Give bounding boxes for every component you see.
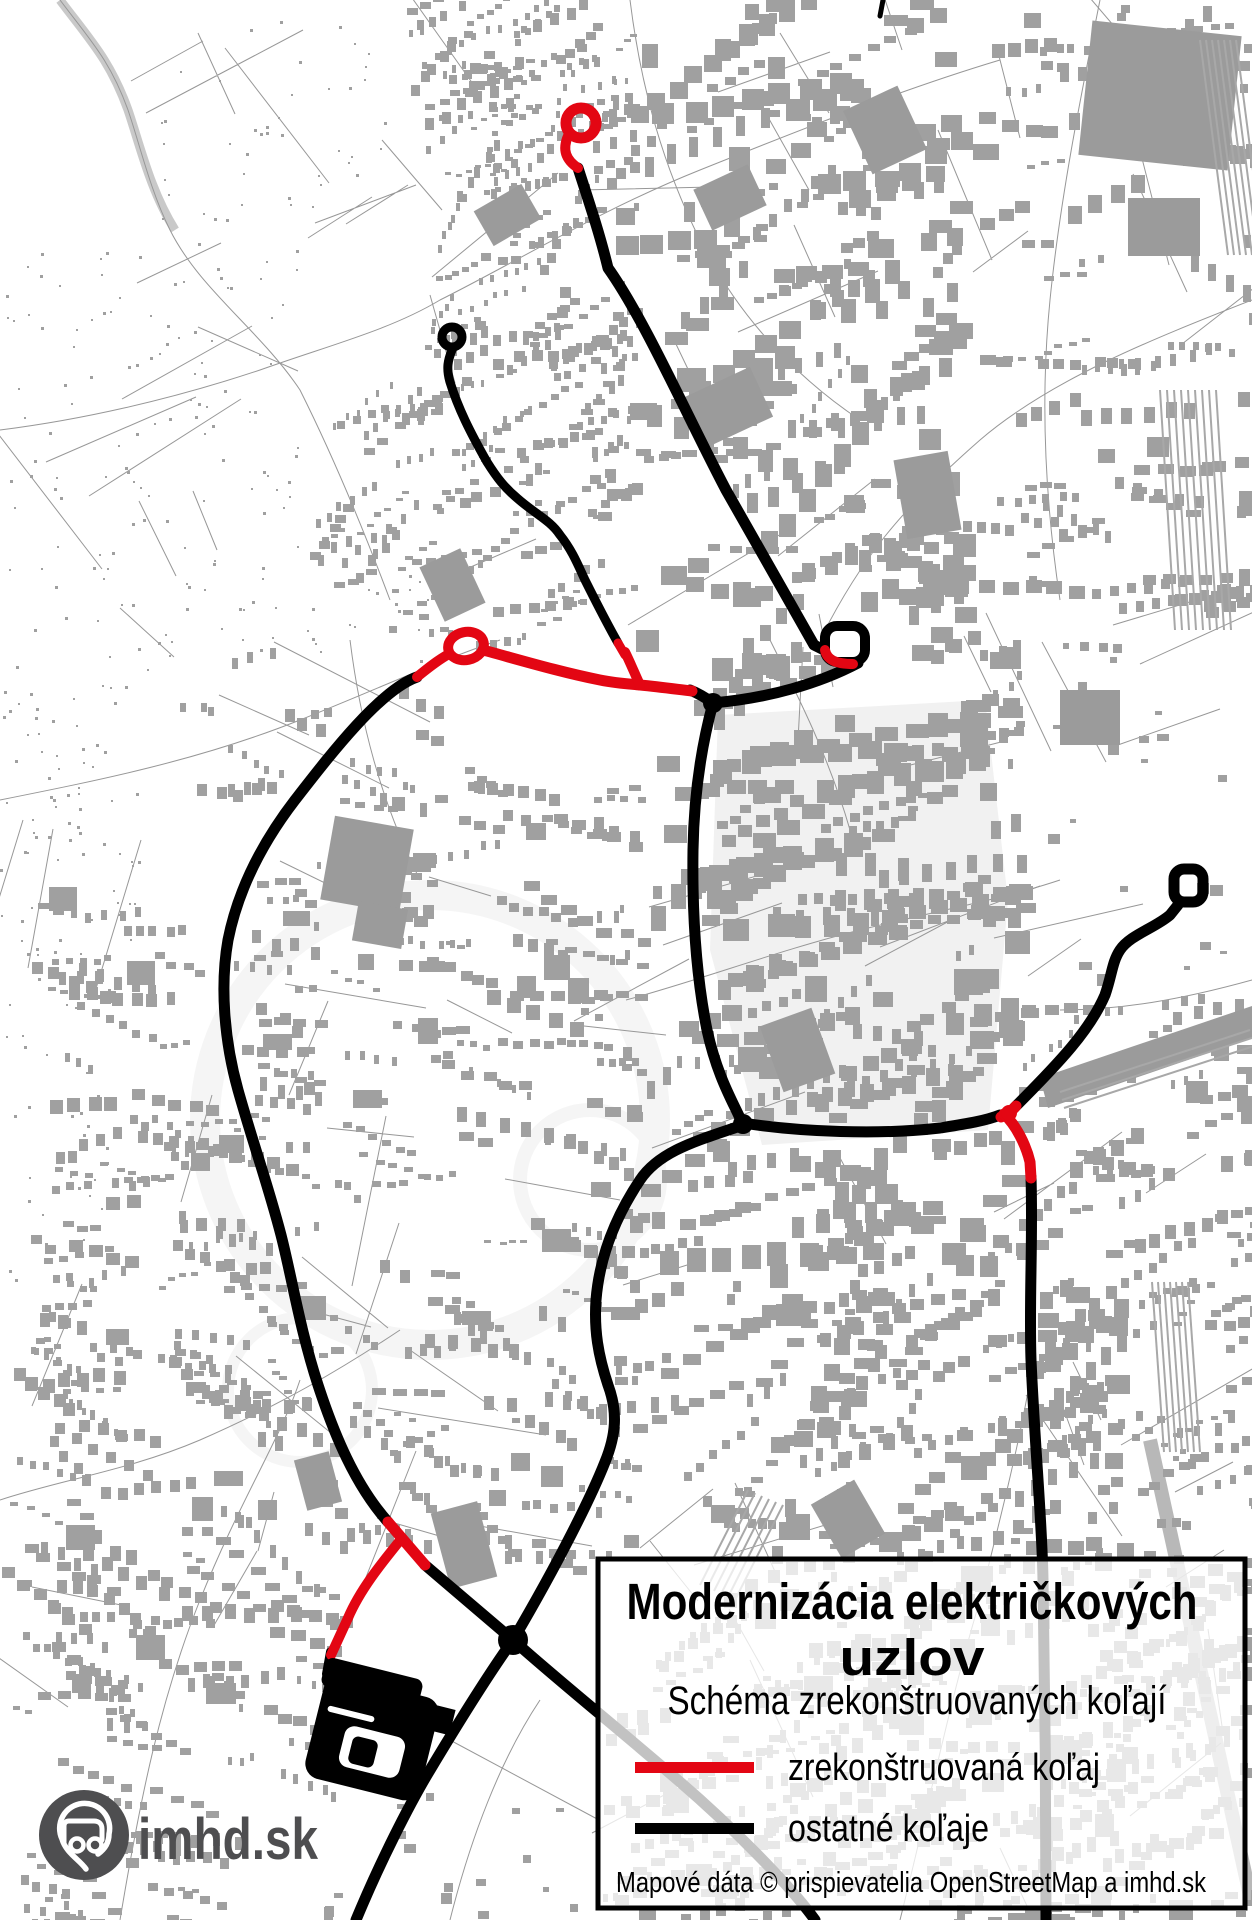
svg-text:zrekonštruovaná koľaj: zrekonštruovaná koľaj — [788, 1747, 1100, 1789]
svg-text:imhd.sk: imhd.sk — [138, 1807, 319, 1872]
svg-text:Modernizácia električkových: Modernizácia električkových — [627, 1573, 1198, 1630]
svg-text:Schéma zrekonštruovaných koľaj: Schéma zrekonštruovaných koľají — [668, 1679, 1167, 1723]
svg-text:ostatné koľaje: ostatné koľaje — [788, 1808, 989, 1850]
svg-text:uzlov: uzlov — [840, 1629, 986, 1686]
svg-text:Mapové dáta © prispievatelia O: Mapové dáta © prispievatelia OpenStreetM… — [616, 1867, 1206, 1899]
